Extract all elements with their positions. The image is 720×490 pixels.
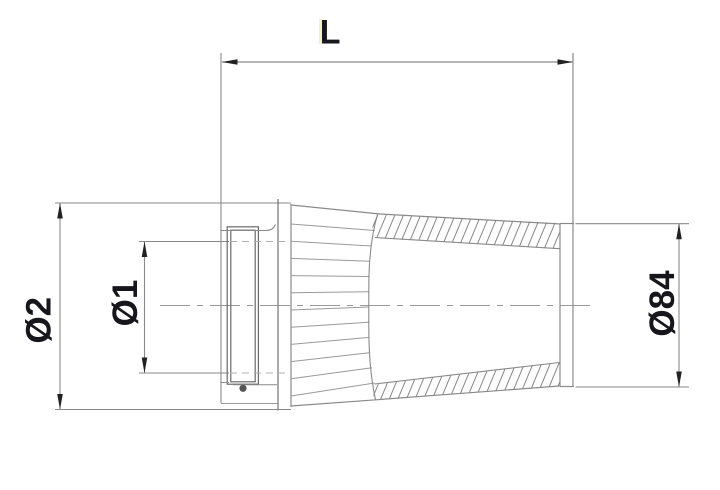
svg-text:Ø84: Ø84 bbox=[643, 270, 682, 337]
svg-text:Ø1: Ø1 bbox=[106, 280, 145, 327]
svg-text:Ø2: Ø2 bbox=[20, 297, 59, 344]
svg-text:L: L bbox=[320, 13, 341, 51]
